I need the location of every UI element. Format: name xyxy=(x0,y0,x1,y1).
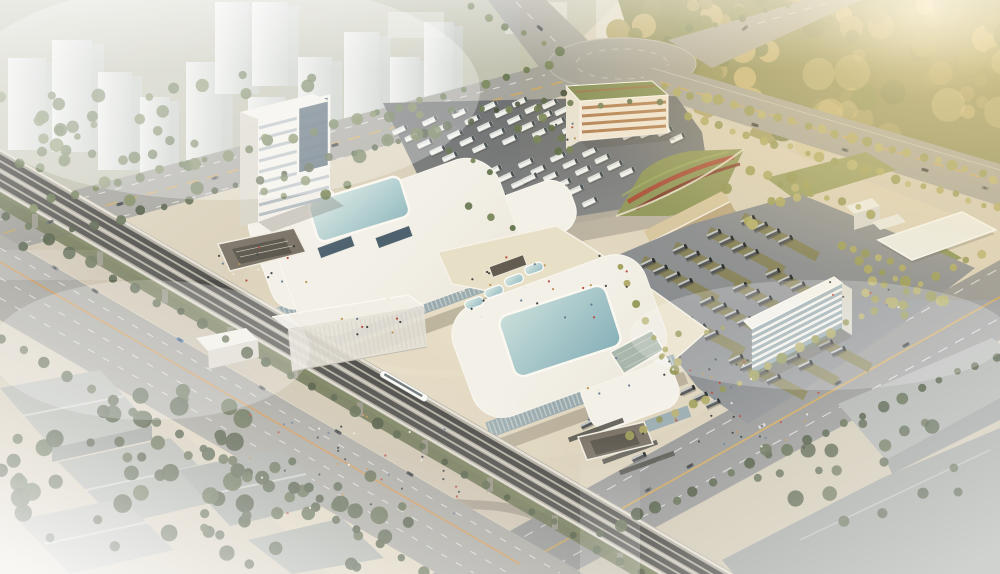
fog-streak-right xyxy=(630,280,1000,390)
aerial-rendering xyxy=(0,0,1000,574)
atmosphere xyxy=(0,0,1000,574)
haze-top xyxy=(0,0,1000,70)
fog-streak-left xyxy=(0,280,310,420)
rendering-stage xyxy=(0,0,1000,574)
